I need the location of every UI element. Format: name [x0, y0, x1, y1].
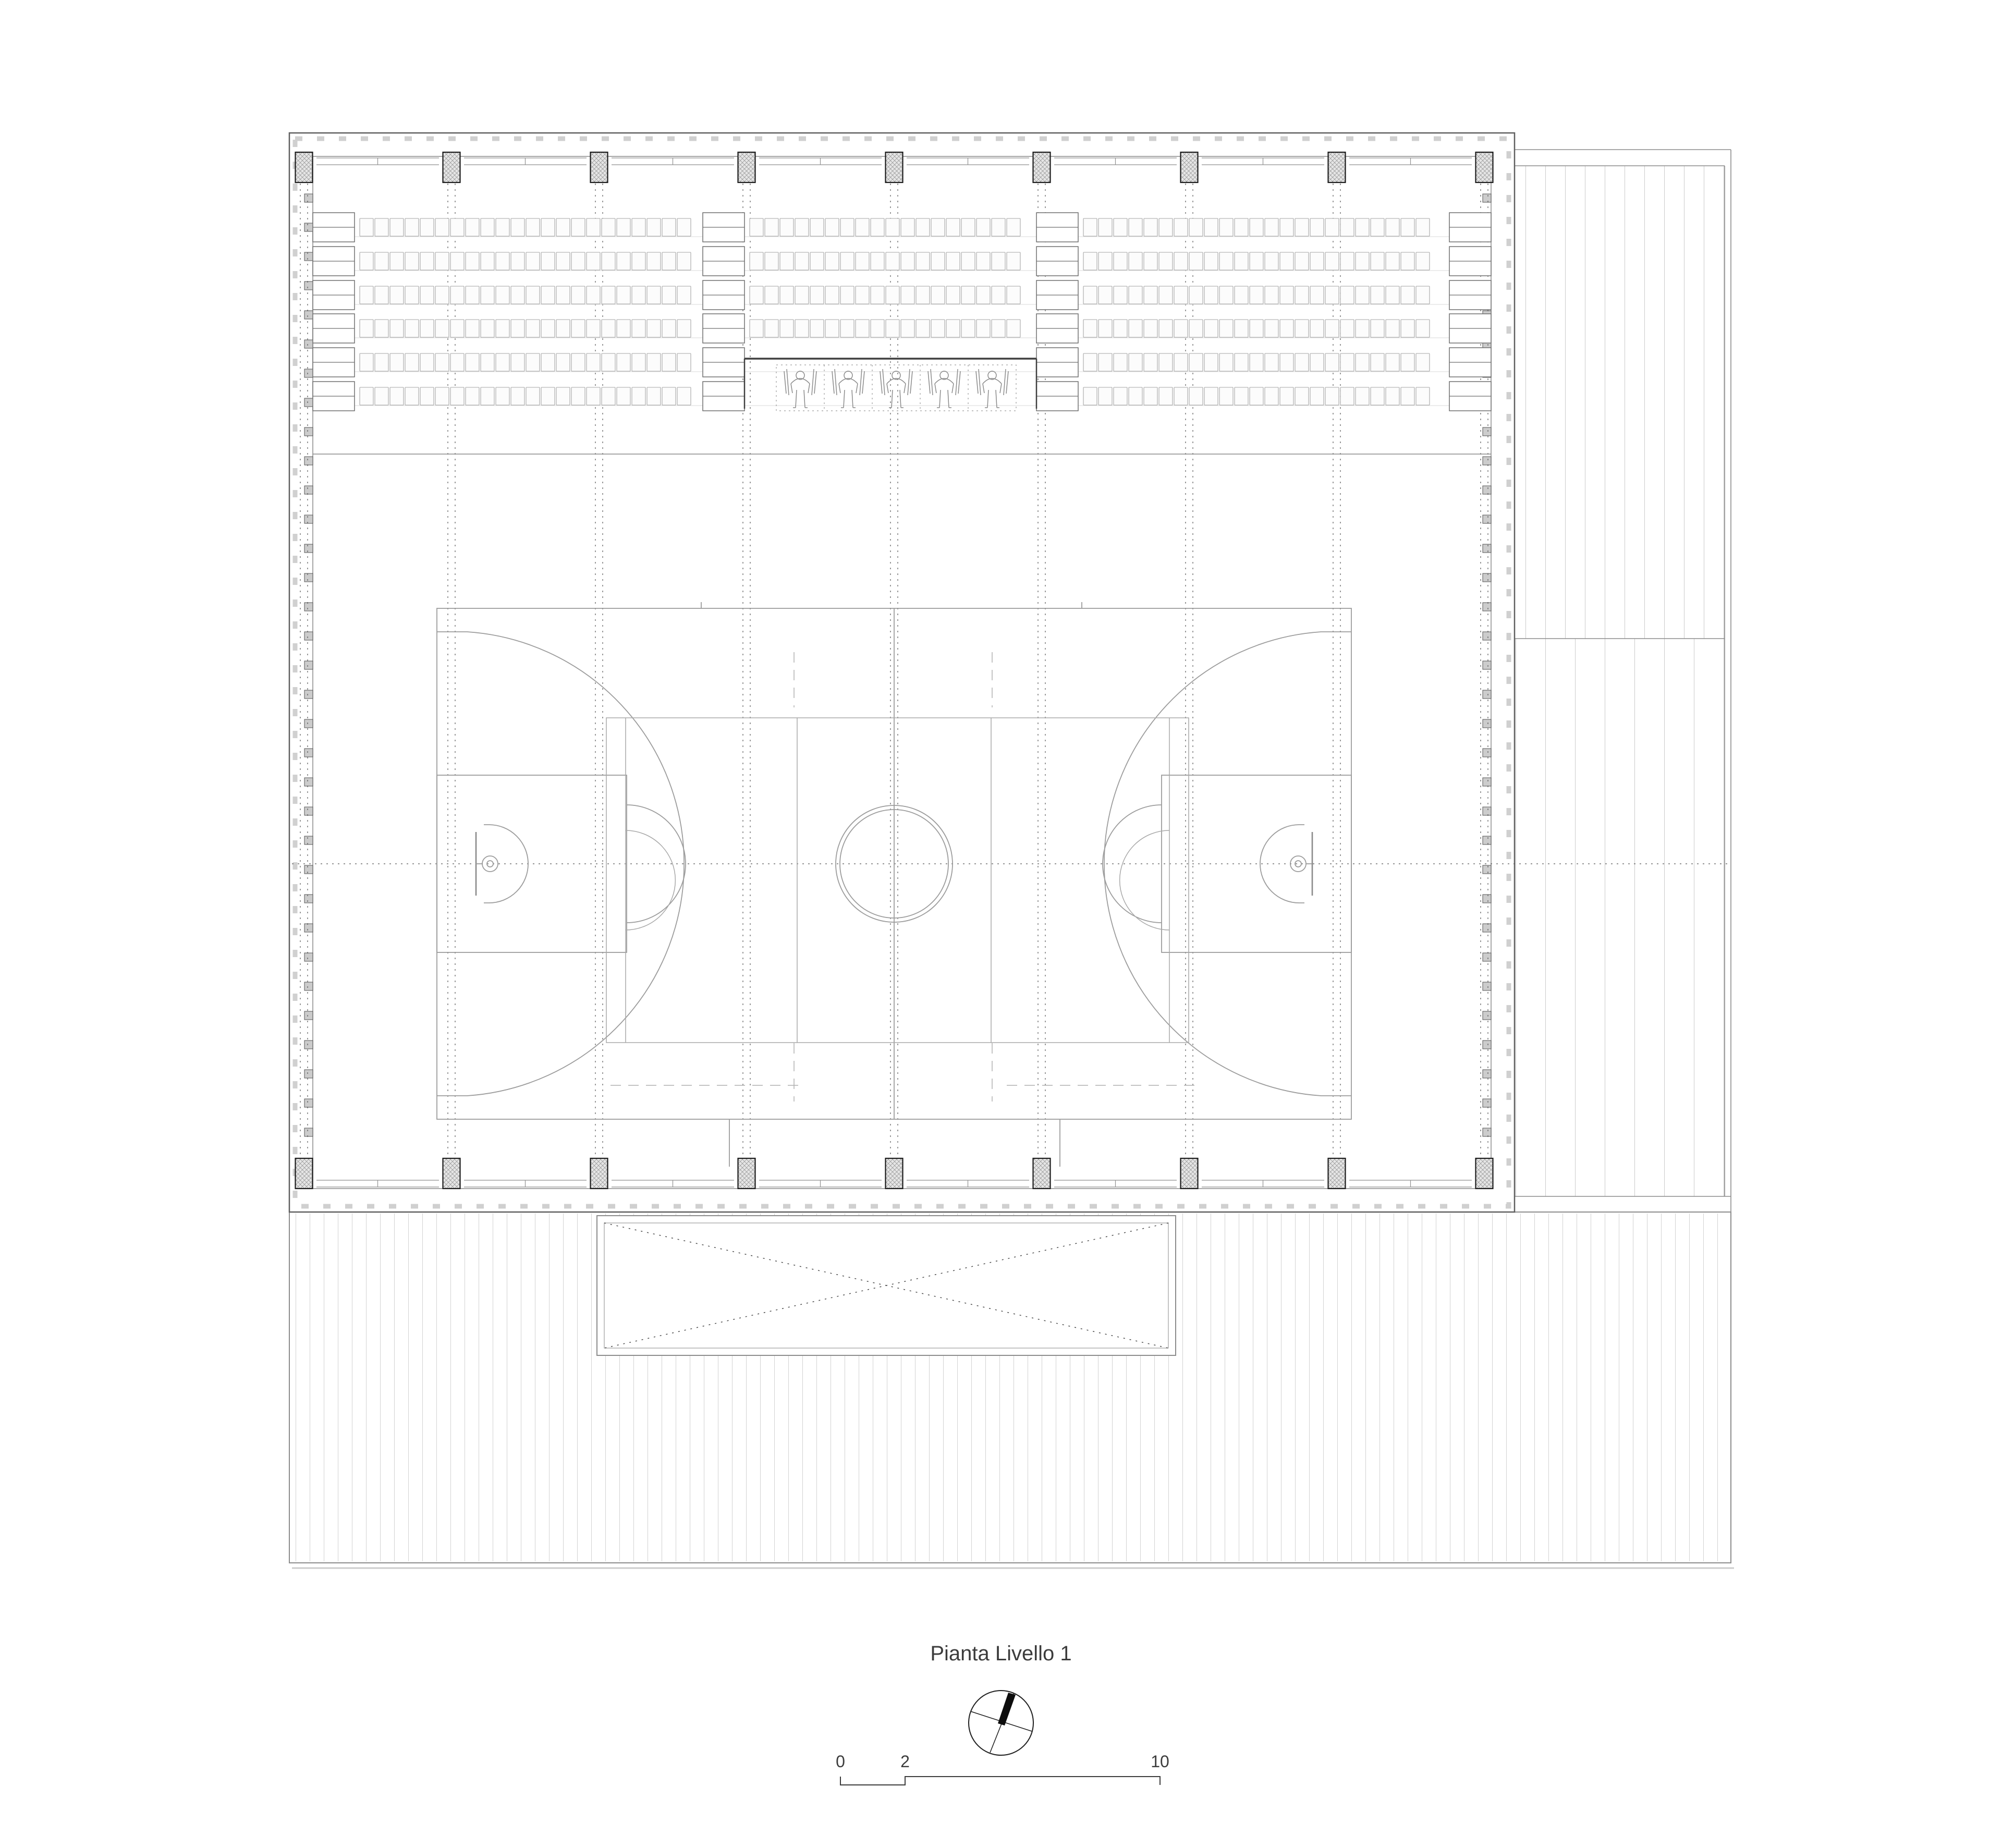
floor-plan-drawing: Pianta Livello 1 0 2 10 — [0, 0, 2002, 1848]
scale-label-2: 2 — [900, 1752, 910, 1771]
scale-bar: 0 2 10 — [836, 1752, 1169, 1785]
scale-label-10: 10 — [1151, 1752, 1169, 1771]
east-terrace-lower-planks — [1516, 639, 1725, 1196]
scale-bar-line — [840, 1777, 1160, 1785]
scale-label-0: 0 — [836, 1752, 845, 1771]
north-arrow-icon — [969, 1691, 1033, 1755]
caption: Pianta Livello 1 — [930, 1642, 1071, 1665]
south-deck — [289, 1212, 1734, 1568]
east-terrace-upper-planks — [1516, 166, 1725, 639]
ramp-box — [597, 1216, 1176, 1355]
floor-plan-sheet: Pianta Livello 1 0 2 10 — [0, 0, 2002, 1848]
